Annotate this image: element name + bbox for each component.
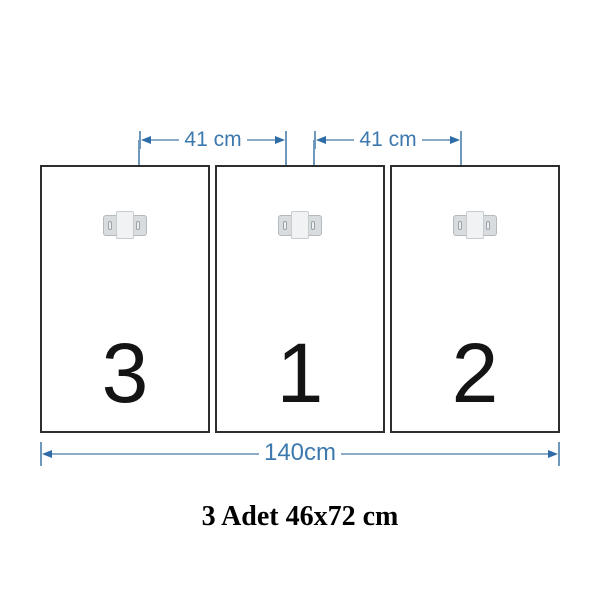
dimension-line-top-left: 41 cm — [139, 131, 287, 149]
panel-number: 1 — [217, 331, 383, 415]
bracket-center — [116, 211, 134, 239]
panel-number: 3 — [42, 331, 208, 415]
dimension-label: 41 cm — [354, 129, 421, 150]
hanger-bracket-icon — [103, 211, 147, 239]
dimension-line-top-right: 41 cm — [314, 131, 462, 149]
dimension-line-segment — [341, 453, 548, 455]
caption-text: 3 Adet 46x72 cm — [0, 501, 600, 533]
hanger-bracket-icon — [453, 211, 497, 239]
bracket-center — [291, 211, 309, 239]
panel-2: 2 — [390, 165, 560, 433]
product-dimension-diagram: 41 cm 41 cm 3 1 — [0, 0, 600, 600]
arrow-right-icon — [548, 450, 558, 458]
screw-slot-icon — [458, 221, 462, 230]
dimension-tick — [558, 442, 560, 466]
dimension-line-segment — [52, 453, 259, 455]
dimension-line-segment — [247, 139, 275, 141]
dimension-label: 140cm — [259, 441, 341, 465]
bracket-center — [466, 211, 484, 239]
panel-number: 2 — [392, 331, 558, 415]
panel-3: 3 — [40, 165, 210, 433]
screw-slot-icon — [283, 221, 287, 230]
screw-slot-icon — [108, 221, 112, 230]
dimension-line-segment — [326, 139, 354, 141]
arrow-left-icon — [141, 136, 151, 144]
arrow-right-icon — [450, 136, 460, 144]
arrow-right-icon — [275, 136, 285, 144]
dimension-line-bottom: 140cm — [40, 442, 560, 466]
arrow-left-icon — [316, 136, 326, 144]
screw-slot-icon — [136, 221, 140, 230]
arrow-left-icon — [42, 450, 52, 458]
screw-slot-icon — [486, 221, 490, 230]
panel-1: 1 — [215, 165, 385, 433]
dimension-line-segment — [422, 139, 450, 141]
dimension-line-segment — [151, 139, 179, 141]
dimension-label: 41 cm — [179, 129, 246, 150]
screw-slot-icon — [311, 221, 315, 230]
hanger-bracket-icon — [278, 211, 322, 239]
